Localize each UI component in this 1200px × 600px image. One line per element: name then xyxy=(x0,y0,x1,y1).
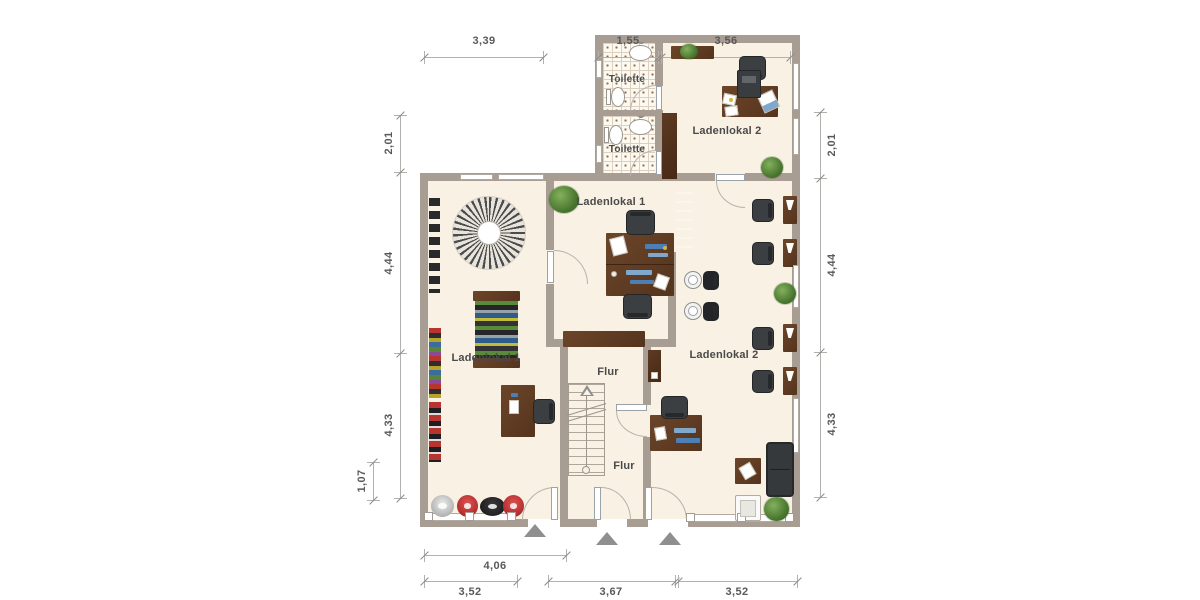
keyboard xyxy=(630,280,654,284)
desk-lamp xyxy=(729,98,733,102)
dimension-label: 2,01 xyxy=(383,123,395,163)
card-terminal xyxy=(511,393,518,397)
room-label-toilette-upper: Toilette xyxy=(602,74,652,85)
dimension-line xyxy=(424,57,543,58)
door-leaf xyxy=(551,487,558,520)
door-leaf xyxy=(645,487,652,520)
office-chair xyxy=(626,210,655,235)
sink-icon xyxy=(629,45,652,61)
wash-basin xyxy=(684,271,702,289)
clothes-rack xyxy=(475,301,518,358)
helmet-display xyxy=(431,495,454,517)
styling-chair xyxy=(752,370,774,393)
plant xyxy=(774,283,796,304)
dimension-label: 4,33 xyxy=(826,404,838,444)
entrance-arrow xyxy=(524,524,546,537)
clothes-rail xyxy=(429,328,441,398)
window-post xyxy=(507,512,516,521)
keyboard xyxy=(676,438,700,443)
window xyxy=(793,118,799,155)
plant xyxy=(764,497,789,521)
dimension-label: 1,55 xyxy=(599,35,657,47)
wash-basin xyxy=(684,302,702,320)
clothes-rack-end xyxy=(473,291,520,301)
wash-chair xyxy=(703,271,719,290)
plant xyxy=(680,44,698,59)
sofa-seam xyxy=(770,469,790,470)
wall xyxy=(627,519,648,527)
window xyxy=(498,174,544,180)
sink-icon xyxy=(629,119,652,135)
round-rack-hub xyxy=(477,221,501,245)
helmet-display xyxy=(480,497,505,516)
door-leaf xyxy=(547,251,554,283)
dimension-line xyxy=(678,581,797,582)
dimension-label: 3,39 xyxy=(455,35,513,47)
office-chair xyxy=(661,396,688,419)
dimension-label: 2,01 xyxy=(826,125,838,165)
door-leaf xyxy=(656,86,662,110)
mouse xyxy=(611,271,617,277)
keyboard xyxy=(674,428,696,433)
toilet-tank xyxy=(606,89,611,105)
room-label-ladenlokal-1-main: Ladenlokal 1 xyxy=(451,352,521,364)
window-post xyxy=(686,513,695,522)
mouse xyxy=(663,246,667,250)
entrance-arrow xyxy=(659,532,681,545)
office-chair xyxy=(623,294,652,319)
cabinet-item xyxy=(651,372,658,379)
door-leaf xyxy=(594,487,601,520)
clothes-rail xyxy=(429,198,440,293)
dimension-line xyxy=(424,581,517,582)
keyboard xyxy=(648,253,668,257)
door-leaf xyxy=(716,174,745,181)
door-leaf xyxy=(616,404,647,411)
window xyxy=(460,174,493,180)
floor-plan: Toilette Toilette Ladenlokal 2 Ladenloka… xyxy=(0,0,1200,600)
monitor-icon xyxy=(737,70,761,98)
door-leaf xyxy=(656,151,662,175)
styling-chair xyxy=(752,199,774,222)
dimension-label: 3,52 xyxy=(441,586,499,598)
wall xyxy=(560,347,568,519)
dimension-label: 4,44 xyxy=(826,245,838,285)
office-chair xyxy=(533,399,555,424)
styling-chair xyxy=(752,242,774,265)
dimension-label: 1,07 xyxy=(356,461,368,501)
plant xyxy=(549,186,579,213)
room-label-flur-lower: Flur xyxy=(609,460,639,472)
wardrobe xyxy=(662,113,677,179)
window-post xyxy=(424,512,433,521)
wash-chair xyxy=(703,302,719,321)
armchair-seat xyxy=(740,500,756,517)
dimension-label: 4,33 xyxy=(383,405,395,445)
shelf-cabinet xyxy=(676,192,693,253)
entrance-arrow xyxy=(596,532,618,545)
desk-divider xyxy=(606,264,674,265)
document xyxy=(724,105,738,117)
room-label-toilette-lower: Toilette xyxy=(602,144,652,155)
wall xyxy=(546,284,554,347)
dimension-label: 4,44 xyxy=(383,243,395,283)
wall xyxy=(420,173,428,527)
wall xyxy=(560,519,597,527)
dimension-line xyxy=(424,555,566,556)
dimension-label: 4,06 xyxy=(466,560,524,572)
sideboard xyxy=(563,331,645,347)
dimension-line xyxy=(820,112,821,497)
stair-end-circle xyxy=(582,466,590,474)
toilet-icon xyxy=(611,87,625,107)
window-post xyxy=(465,512,474,521)
room-label-flur-upper: Flur xyxy=(593,366,623,378)
cash-register xyxy=(509,400,519,414)
styling-chair xyxy=(752,327,774,350)
dimension-line xyxy=(548,581,675,582)
window xyxy=(793,63,799,110)
dimension-label: 3,52 xyxy=(708,586,766,598)
toilet-tank xyxy=(604,127,609,143)
document xyxy=(654,426,667,441)
stair-up-arrow-inner xyxy=(583,389,591,395)
room-label-ladenlokal-1-inner: Ladenlokal 1 xyxy=(576,196,646,208)
toilet-icon xyxy=(609,125,623,145)
plant xyxy=(761,157,783,178)
keyboard xyxy=(626,270,652,275)
room-label-ladenlokal-2-upper: Ladenlokal 2 xyxy=(692,125,762,137)
dimension-line xyxy=(373,462,374,500)
room-label-ladenlokal-2-main: Ladenlokal 2 xyxy=(689,349,759,361)
clothes-rail xyxy=(429,402,441,462)
stair-centerline xyxy=(586,396,587,467)
wall xyxy=(655,43,663,86)
dimension-label: 3,67 xyxy=(582,586,640,598)
